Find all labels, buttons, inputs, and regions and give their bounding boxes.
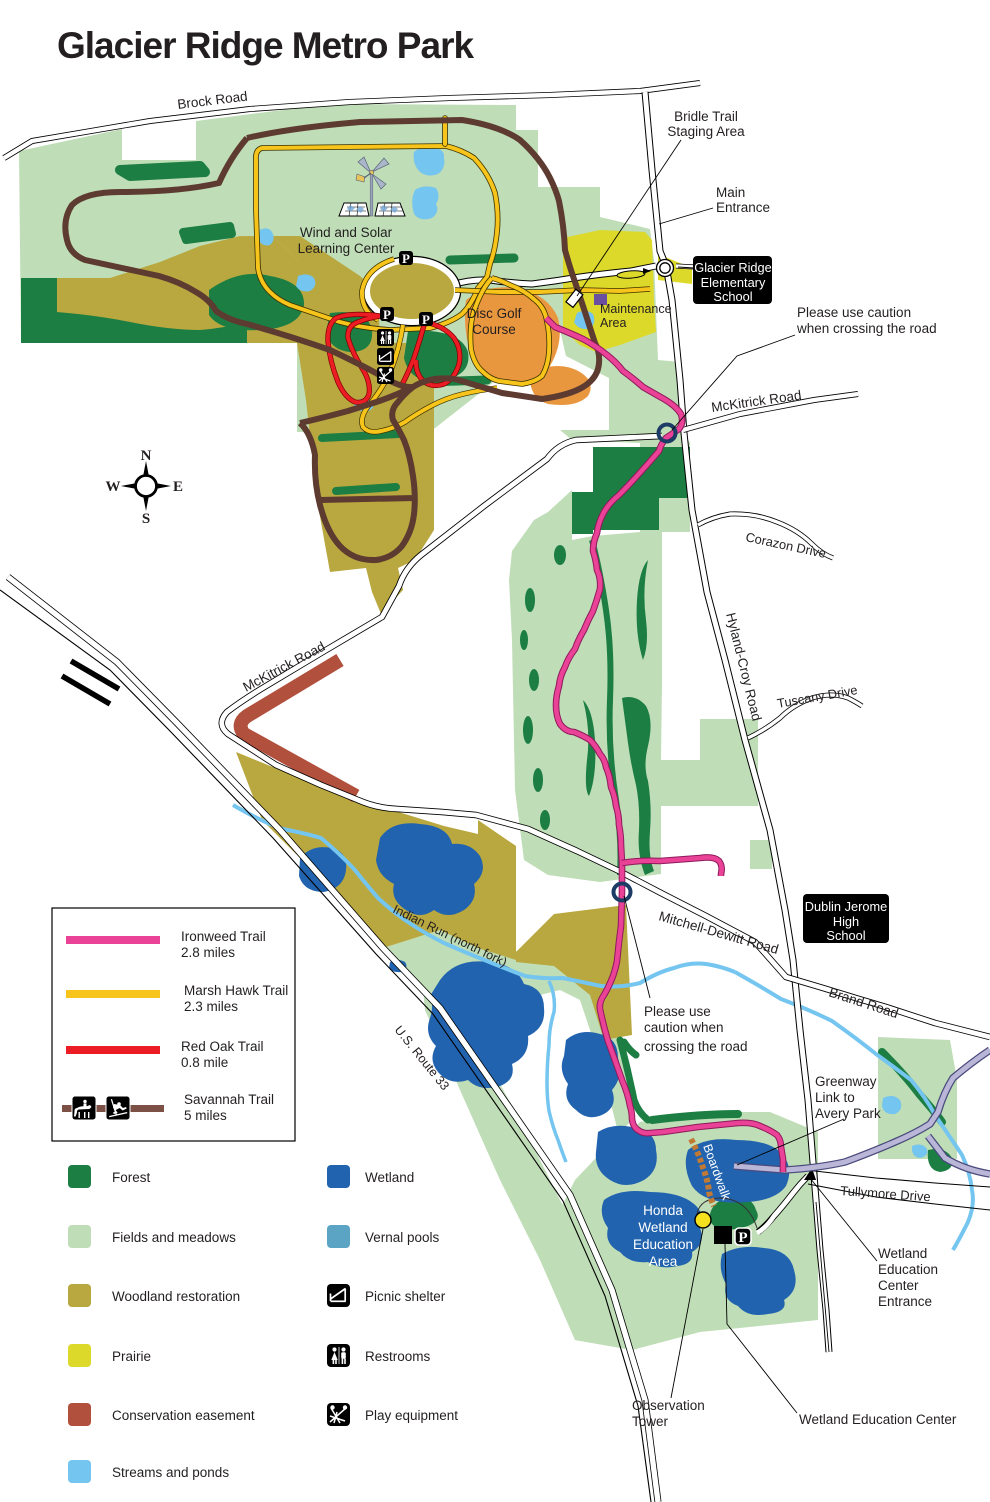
svg-text:P: P — [422, 312, 430, 327]
svg-text:Please use: Please use — [644, 1004, 711, 1019]
svg-text:Avery Park: Avery Park — [815, 1106, 881, 1121]
svg-text:Maintenance: Maintenance — [600, 302, 672, 316]
svg-text:0.8 mile: 0.8 mile — [181, 1055, 228, 1070]
svg-text:P: P — [738, 1230, 747, 1246]
svg-text:Ironweed Trail: Ironweed Trail — [181, 929, 266, 944]
svg-text:Honda: Honda — [643, 1203, 683, 1218]
svg-text:Glacier Ridge: Glacier Ridge — [694, 260, 772, 275]
svg-text:Link to: Link to — [815, 1090, 855, 1105]
svg-text:Glacier Ridge Metro Park: Glacier Ridge Metro Park — [57, 25, 474, 66]
svg-text:Conservation easement: Conservation easement — [112, 1408, 255, 1423]
svg-text:Education: Education — [878, 1262, 938, 1277]
svg-text:W: W — [106, 479, 121, 495]
svg-text:Woodland restoration: Woodland restoration — [112, 1289, 240, 1304]
svg-text:Disc Golf: Disc Golf — [467, 306, 522, 321]
svg-text:Savannah Trail: Savannah Trail — [184, 1092, 274, 1107]
svg-text:crossing the road: crossing the road — [644, 1039, 748, 1054]
svg-text:Education: Education — [633, 1237, 693, 1252]
svg-text:Please use caution: Please use caution — [797, 305, 911, 320]
svg-text:Learning Center: Learning Center — [298, 241, 395, 256]
svg-text:Wetland Education Center: Wetland Education Center — [799, 1412, 957, 1427]
svg-text:Center: Center — [878, 1278, 919, 1293]
svg-text:caution when: caution when — [644, 1020, 724, 1035]
svg-text:Entrance: Entrance — [878, 1294, 932, 1309]
svg-text:School: School — [826, 928, 865, 943]
svg-text:Wetland: Wetland — [365, 1170, 414, 1185]
svg-text:2.3 miles: 2.3 miles — [184, 999, 238, 1014]
svg-text:High: High — [833, 914, 859, 929]
svg-text:Entrance: Entrance — [716, 200, 770, 215]
svg-text:Streams and ponds: Streams and ponds — [112, 1465, 229, 1480]
svg-text:E: E — [173, 479, 183, 495]
svg-text:Main: Main — [716, 185, 745, 200]
svg-text:Restrooms: Restrooms — [365, 1349, 431, 1364]
svg-text:Prairie: Prairie — [112, 1349, 151, 1364]
svg-text:Observation: Observation — [632, 1398, 705, 1413]
svg-text:Marsh Hawk Trail: Marsh Hawk Trail — [184, 983, 288, 998]
svg-text:Greenway: Greenway — [815, 1074, 877, 1089]
svg-text:Picnic shelter: Picnic shelter — [365, 1289, 446, 1304]
svg-text:Tower: Tower — [632, 1414, 669, 1429]
svg-text:P: P — [402, 251, 410, 266]
svg-text:Wetland: Wetland — [878, 1246, 927, 1261]
svg-text:Wetland: Wetland — [638, 1220, 687, 1235]
svg-text:Bridle Trail: Bridle Trail — [674, 109, 738, 124]
svg-text:Area: Area — [649, 1254, 678, 1269]
svg-text:School: School — [713, 289, 752, 304]
svg-text:Area: Area — [600, 316, 626, 330]
svg-text:P: P — [383, 307, 391, 322]
svg-text:Red Oak Trail: Red Oak Trail — [181, 1039, 264, 1054]
svg-text:S: S — [142, 511, 150, 527]
svg-text:Staging Area: Staging Area — [667, 124, 745, 139]
svg-text:when crossing the road: when crossing the road — [796, 321, 937, 336]
svg-text:Dublin Jerome: Dublin Jerome — [805, 899, 888, 914]
svg-text:Elementary: Elementary — [701, 275, 766, 290]
svg-text:Play equipment: Play equipment — [365, 1408, 458, 1423]
svg-text:N: N — [141, 448, 152, 464]
svg-text:5 miles: 5 miles — [184, 1108, 227, 1123]
svg-text:2.8 miles: 2.8 miles — [181, 945, 235, 960]
svg-text:Vernal pools: Vernal pools — [365, 1230, 440, 1245]
svg-text:Course: Course — [472, 322, 516, 337]
svg-text:Fields and meadows: Fields and meadows — [112, 1230, 236, 1245]
svg-text:Wind and Solar: Wind and Solar — [300, 225, 393, 240]
svg-text:Forest: Forest — [112, 1170, 151, 1185]
